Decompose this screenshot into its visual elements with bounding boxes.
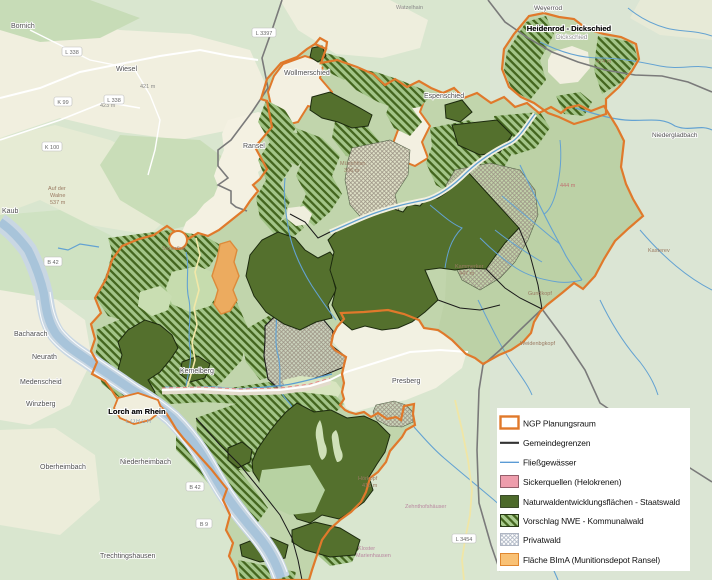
svg-text:Fläche BImA (Munitionsdepot Ra: Fläche BImA (Munitionsdepot Ransel) [523,555,660,565]
svg-text:B 9: B 9 [200,522,208,528]
svg-text:Weyerrod: Weyerrod [534,5,562,12]
svg-text:Kemelberg: Kemelberg [180,368,214,375]
svg-text:474 m: 474 m [596,59,612,65]
svg-text:K 100: K 100 [45,145,59,151]
svg-text:K 99: K 99 [57,100,68,106]
svg-text:Medenscheid: Medenscheid [20,379,62,386]
svg-text:Bornich: Bornich [11,23,35,30]
svg-text:Wollmerschied: Wollmerschied [284,70,330,77]
svg-text:Ransel: Ransel [243,143,265,150]
svg-text:444 m: 444 m [560,183,576,189]
svg-text:416 m: 416 m [362,483,378,489]
svg-text:Kaub: Kaub [2,208,18,215]
svg-text:Auf der: Auf der [48,186,66,192]
svg-text:Trechtingshausen: Trechtingshausen [100,553,155,560]
svg-text:Kloster: Kloster [358,546,375,552]
svg-text:Gemeindegrenzen: Gemeindegrenzen [523,438,591,448]
svg-text:Hörkopf: Hörkopf [358,476,378,482]
svg-text:Bacharach: Bacharach [14,331,48,338]
svg-text:L 338: L 338 [65,50,79,56]
svg-text:Kammerker: Kammerker [455,264,484,270]
svg-text:Privatwald: Privatwald [523,535,561,545]
svg-text:Walne: Walne [50,193,65,199]
svg-text:447 m: 447 m [459,271,475,277]
svg-text:L 3454: L 3454 [456,537,473,543]
svg-text:Lorch am Rhein: Lorch am Rhein [108,407,166,416]
svg-text:Watzelhain: Watzelhain [396,5,423,11]
svg-text:Espenschied: Espenschied [424,93,464,100]
svg-text:396 m: 396 m [344,168,360,174]
svg-text:NGP Planungsraum: NGP Planungsraum [523,419,596,429]
svg-text:Naturwaldentwicklungsflächen -: Naturwaldentwicklungsflächen - Staatswal… [523,497,680,507]
svg-text:L 338: L 338 [107,98,121,104]
svg-text:Fließgewässer: Fließgewässer [523,458,576,468]
svg-text:Presberg: Presberg [392,378,421,385]
svg-text:421 m: 421 m [140,84,156,90]
svg-text:Heidenrod - Dickschied: Heidenrod - Dickschied [527,24,612,33]
svg-text:LORCH: LORCH [126,419,152,425]
svg-text:Dickschied: Dickschied [556,34,588,41]
svg-text:B 42: B 42 [47,260,58,266]
svg-text:Kasterev: Kasterev [648,248,670,254]
svg-text:Neurath: Neurath [32,354,57,361]
svg-text:Marienhausen: Marienhausen [356,553,391,559]
svg-text:Niedergladbach: Niedergladbach [652,132,698,139]
svg-text:Vorschlag NWE - Kommunalwald: Vorschlag NWE - Kommunalwald [523,516,644,526]
svg-text:Oberheimbach: Oberheimbach [40,464,86,471]
svg-text:Weidenbgkopf: Weidenbgkopf [520,341,556,347]
svg-text:Wiesel: Wiesel [116,66,137,73]
svg-text:Gundkopf: Gundkopf [528,291,552,297]
svg-text:537 m: 537 m [50,200,66,206]
svg-text:Winzberg: Winzberg [26,401,56,408]
svg-text:Münchhsn.: Münchhsn. [340,161,367,167]
svg-text:Sauerthal: Sauerthal [162,246,186,252]
svg-text:Zehnthofshäuser: Zehnthofshäuser [405,504,446,510]
svg-text:L 3397: L 3397 [256,31,273,37]
svg-text:Niederheimbach: Niederheimbach [120,459,171,466]
svg-text:B 42: B 42 [189,485,200,491]
svg-text:Sickerquellen (Helokrenen): Sickerquellen (Helokrenen) [523,477,622,487]
